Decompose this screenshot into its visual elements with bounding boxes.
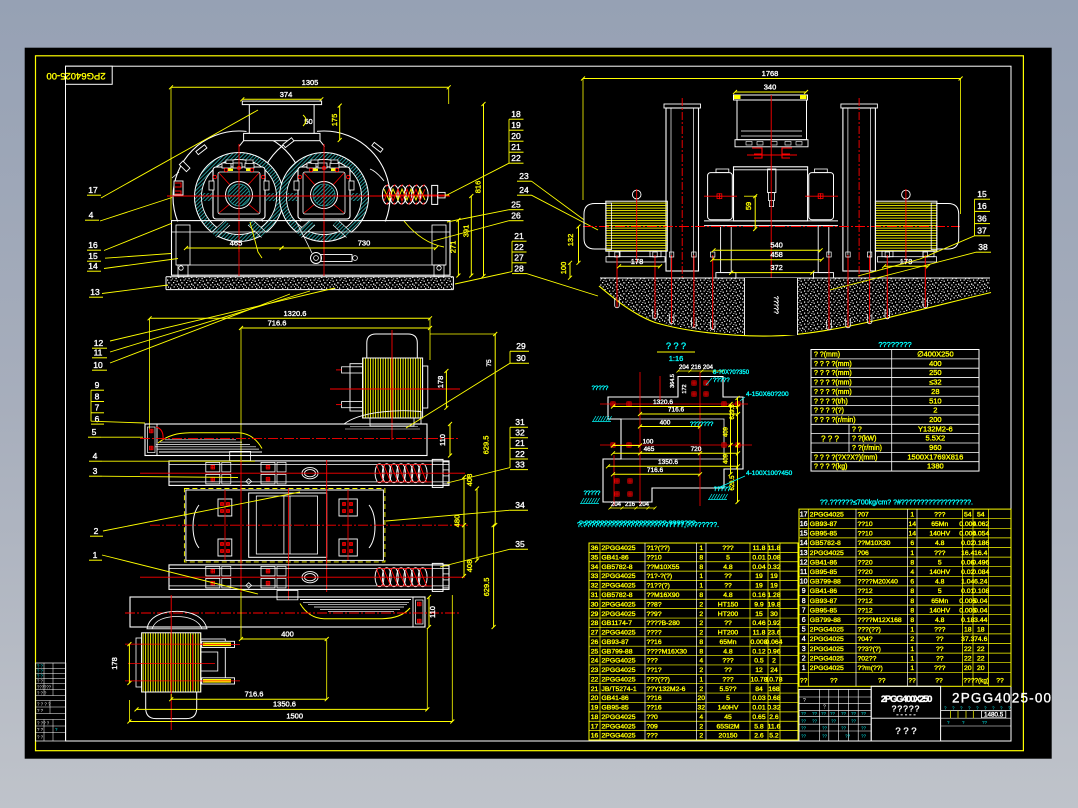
svg-text:GB5782-8: GB5782-8 [602,564,633,571]
svg-text:22: 22 [977,655,985,662]
svg-text:2PGG4025: 2PGG4025 [602,573,636,580]
svg-text:4.8: 4.8 [723,564,733,571]
svg-text:5.8: 5.8 [754,723,764,730]
svg-text:5: 5 [726,554,730,561]
svg-text:???: ??? [722,676,734,683]
svg-text:11: 11 [94,348,103,358]
svg-text:? ?(r/min): ? ?(r/min) [852,445,882,452]
svg-text:??10: ??10 [858,521,873,528]
svg-text:??: ?? [724,620,732,627]
svg-text:??: ?? [812,719,818,724]
svg-text:4.8: 4.8 [723,648,733,655]
svg-text:45: 45 [724,714,732,721]
svg-text:510: 510 [929,396,942,405]
svg-text:8: 8 [910,617,914,624]
svg-text:2: 2 [699,733,703,740]
svg-text:16: 16 [977,201,987,211]
svg-text:0.04: 0.04 [752,564,765,571]
svg-text:?????: ????? [714,487,731,493]
svg-text:716.6: 716.6 [268,319,287,328]
svg-text:1: 1 [910,665,914,672]
svg-text:2PGG4025-00: 2PGG4025-00 [952,691,1052,706]
svg-text:???: ??? [647,658,659,665]
svg-text:??: ?? [841,711,847,716]
svg-text:14: 14 [908,521,916,528]
svg-text:???: ??? [934,627,946,634]
svg-text:35: 35 [591,554,599,561]
svg-text:175: 175 [330,114,339,127]
svg-text:716.6: 716.6 [245,689,264,698]
svg-text:2PG64025-00: 2PG64025-00 [46,70,105,81]
svg-text:?04?: ?04? [858,636,873,643]
svg-text:??Y132M2-6: ??Y132M2-6 [647,686,686,693]
svg-text:GB799-88: GB799-88 [810,579,841,586]
svg-text:204: 204 [679,365,690,371]
svg-text:???(??): ???(??) [858,627,881,634]
svg-text:??M10X30: ??M10X30 [858,540,891,547]
svg-text:GB95-85: GB95-85 [810,607,837,614]
svg-text:22: 22 [964,646,972,653]
svg-text:GB41-86: GB41-86 [810,559,837,566]
svg-text:15: 15 [800,531,808,538]
svg-text:1768: 1768 [762,69,779,78]
svg-text:? ?: ? ? [37,678,43,683]
svg-text:2PGG4025: 2PGG4025 [810,665,844,672]
svg-text:0.65: 0.65 [752,714,765,721]
svg-text:GB5782-8: GB5782-8 [602,592,633,599]
svg-text:8: 8 [910,588,914,595]
svg-text:271: 271 [448,241,457,254]
svg-text:1380: 1380 [927,462,944,471]
svg-text:35: 35 [515,539,525,549]
svg-text:??: ?? [801,711,807,716]
svg-text:0.496: 0.496 [972,559,989,566]
svg-text:629.5: 629.5 [482,436,491,455]
svg-text:????M12X168: ????M12X168 [858,617,902,624]
svg-text:716.6: 716.6 [668,407,685,414]
svg-text:25: 25 [591,648,599,655]
svg-text:??: ?? [861,711,867,716]
svg-text:? ? ? ?(?): ? ? ? ?(?) [814,408,844,415]
svg-text:2: 2 [94,526,99,536]
svg-text:2PGG4025: 2PGG4025 [810,511,844,518]
svg-text:54: 54 [964,511,972,518]
svg-text:140HV: 140HV [929,607,950,614]
svg-text:≤32: ≤32 [929,378,941,387]
svg-text:17: 17 [800,511,808,518]
svg-text:GB95-85: GB95-85 [810,531,837,538]
svg-text:716.6: 716.6 [647,467,664,474]
svg-text:??: ?? [963,677,971,684]
svg-text:33: 33 [515,459,525,469]
svg-text:84: 84 [755,686,763,693]
svg-text:0.68: 0.68 [767,695,780,702]
svg-text:10: 10 [93,360,103,370]
svg-text:5.5X2: 5.5X2 [926,434,946,443]
svg-text:??20: ??20 [858,569,873,576]
svg-text:204: 204 [639,502,650,508]
svg-text:??: ?? [822,734,828,739]
svg-text:? ?: ? ? [37,708,44,713]
svg-text:178: 178 [110,657,119,670]
svg-text:38: 38 [978,242,988,252]
svg-text:34: 34 [591,564,599,571]
svg-text:19: 19 [755,573,763,580]
svg-text:17: 17 [591,723,599,730]
svg-text:12: 12 [755,667,763,674]
svg-text:31: 31 [515,417,525,427]
svg-text:1: 1 [910,627,914,634]
svg-text:0.96: 0.96 [767,648,780,655]
svg-text:??20: ??20 [858,559,873,566]
svg-text:4: 4 [699,714,703,721]
svg-text:24: 24 [519,185,529,195]
svg-text:??: ?? [861,734,867,739]
svg-text:32: 32 [591,583,599,590]
svg-text:17: 17 [88,185,98,195]
svg-text:465: 465 [644,446,655,453]
svg-text:23: 23 [519,171,529,181]
svg-text:480: 480 [453,515,462,528]
svg-text:???: ??? [722,545,734,552]
svg-text:2: 2 [699,611,703,618]
svg-text:720: 720 [691,446,702,453]
svg-text:364.5: 364.5 [670,374,676,388]
svg-text:??: ?? [724,583,732,590]
svg-text:30: 30 [591,601,599,608]
svg-text:??3?(?): ??3?(?) [858,646,881,653]
svg-text:?07: ?07 [858,511,870,518]
svg-text:100: 100 [559,262,568,275]
svg-text:???: ??? [647,733,659,740]
svg-text:30: 30 [516,353,526,363]
svg-text:27: 27 [591,630,599,637]
svg-text:400: 400 [281,629,294,638]
svg-text:20: 20 [698,695,706,702]
svg-text:? ?: ? ? [37,727,44,732]
svg-text:2PGG4025: 2PGG4025 [602,733,636,740]
svg-text:??: ?? [801,734,807,739]
svg-text:2PGG4025: 2PGG4025 [602,545,636,552]
svg-text:9: 9 [95,380,100,390]
svg-text:250: 250 [929,368,942,377]
svg-text:28: 28 [591,620,599,627]
svg-text:4-100X100?450: 4-100X100?450 [746,470,793,477]
svg-text:?????: ????? [772,296,779,314]
svg-text:21: 21 [515,438,525,448]
svg-text:34: 34 [515,500,525,510]
svg-text:?: ? [823,705,826,711]
svg-text:5: 5 [938,588,942,595]
svg-text:1: 1 [910,655,914,662]
svg-text:? ?(kW): ? ?(kW) [852,436,877,443]
svg-text:2PGG4025: 2PGG4025 [810,655,844,662]
svg-text:7: 7 [802,607,806,614]
svg-text:? ? ?: ? ? ? [37,690,47,695]
svg-text:11.8: 11.8 [753,545,766,552]
svg-text:? ? ? ?(mm): ? ? ? ?(mm) [814,389,852,396]
svg-text:1:16: 1:16 [669,354,684,363]
svg-text:HT150: HT150 [718,601,739,608]
svg-text:2PGG4025: 2PGG4025 [602,676,636,683]
svg-text:?????: ????? [592,386,609,392]
svg-text:2: 2 [772,658,776,665]
svg-text:6: 6 [802,617,806,624]
svg-text:? ? ? ?: ? ? ? ? [37,702,51,707]
svg-text:18: 18 [511,109,521,119]
svg-text:??16: ??16 [647,705,662,712]
svg-text:? ? ?: ? ? ? [821,434,839,443]
svg-text:32: 32 [515,428,525,438]
svg-text:?1??(?): ?1??(?) [647,583,670,590]
svg-text:5: 5 [802,627,806,634]
svg-text:21: 21 [514,231,524,241]
svg-text:2: 2 [699,667,703,674]
svg-text:?:?????????????????????,??????: ?:?????????????????????,???????. [579,521,698,528]
svg-text:Y132M2-6: Y132M2-6 [918,424,953,433]
svg-text:?1?-?(?): ?1?-?(?) [647,573,673,580]
svg-text:???: ??? [934,665,946,672]
svg-text:? ? ? ?(mm): ? ? ? ?(mm) [814,361,852,368]
svg-text:??(kg): ??(kg) [971,677,989,684]
svg-text:1: 1 [802,665,806,672]
svg-text:0.03: 0.03 [752,695,765,702]
svg-text:4.8: 4.8 [723,592,733,599]
svg-text:16: 16 [591,733,599,740]
svg-text:65Mn: 65Mn [931,598,948,605]
svg-text:6.24: 6.24 [974,579,987,586]
svg-text:1320.6: 1320.6 [284,309,307,318]
svg-text:GB93-87: GB93-87 [810,521,837,528]
svg-text:8: 8 [910,559,914,566]
svg-text:HT200: HT200 [718,611,739,618]
svg-text:0.064: 0.064 [765,639,782,646]
svg-text:??: ?? [800,677,808,684]
svg-text:1: 1 [910,511,914,518]
svg-text:629.5: 629.5 [482,578,491,597]
svg-text:730: 730 [358,238,371,247]
svg-text:??: ?? [841,726,847,731]
svg-text:??1?: ??1? [647,667,662,674]
svg-text:1: 1 [699,545,703,552]
svg-text:29: 29 [516,341,526,351]
svg-text:2: 2 [699,601,703,608]
svg-text:2PGG4025: 2PGG4025 [810,550,844,557]
svg-text:2: 2 [699,723,703,730]
svg-text:26: 26 [511,211,521,221]
svg-text:2PGG4025: 2PGG4025 [602,601,636,608]
svg-text:6: 6 [910,540,914,547]
svg-text:33: 33 [591,573,599,580]
svg-text:??: ?? [830,711,836,716]
svg-text:36: 36 [591,545,599,552]
svg-text:??: ?? [724,573,732,580]
svg-text:629.5: 629.5 [730,475,736,491]
svg-text:20: 20 [511,131,521,141]
svg-text:??.??????≤700kg/cm? ?#???????: ??.??????≤700kg/cm? ?#??????????????????… [820,500,973,507]
svg-text:??: ?? [851,719,857,724]
svg-text:0.16: 0.16 [752,592,765,599]
svg-text:7: 7 [95,403,100,413]
svg-text:8: 8 [910,598,914,605]
svg-text:14: 14 [88,261,98,271]
svg-text:14: 14 [908,531,916,538]
svg-text:74.6: 74.6 [974,636,987,643]
svg-text:37: 37 [977,226,987,236]
svg-text:??: ?? [851,711,857,716]
svg-text:409: 409 [724,426,730,437]
svg-text:9.9: 9.9 [754,601,764,608]
svg-text:9: 9 [802,588,806,595]
svg-text:5.2: 5.2 [769,733,779,740]
svg-text:20: 20 [964,665,972,672]
svg-text:132: 132 [566,234,575,247]
svg-text:4: 4 [802,636,806,643]
svg-text:JB/T5274-1: JB/T5274-1 [602,686,637,693]
svg-text:5.5??: 5.5?? [719,686,736,693]
svg-text:4.8: 4.8 [935,579,945,586]
svg-text:1.04: 1.04 [961,579,974,586]
svg-text:37.3: 37.3 [961,636,974,643]
svg-text:0.04: 0.04 [974,607,987,614]
svg-text:3: 3 [802,646,806,653]
svg-text:2.6: 2.6 [754,733,764,740]
svg-text:21: 21 [511,142,521,152]
svg-text:? ?(mm): ? ?(mm) [814,352,840,359]
svg-text:216: 216 [691,365,702,371]
svg-text:? ? ?: ? ? ? [895,726,916,737]
svg-text:24: 24 [591,658,599,665]
svg-text:27: 27 [514,253,524,263]
svg-text:????M16X30: ????M16X30 [647,648,688,655]
svg-text:??: ?? [830,677,838,684]
svg-text:0.054: 0.054 [972,531,989,538]
svg-text:172: 172 [682,384,688,393]
svg-text:16.4: 16.4 [961,550,974,557]
svg-text:??????: ?????? [37,684,52,689]
svg-text:8: 8 [95,391,100,401]
svg-text:21: 21 [591,686,599,693]
svg-text:1: 1 [93,550,98,560]
svg-text:2PGG4025: 2PGG4025 [810,627,844,634]
svg-text:10.78: 10.78 [765,676,782,683]
svg-text:8: 8 [699,564,703,571]
svg-text:????M20X40: ????M20X40 [858,579,899,586]
svg-text:29: 29 [591,611,599,618]
svg-text:??: ?? [821,711,827,716]
svg-text:4: 4 [699,658,703,665]
svg-text:2PGG4025: 2PGG4025 [810,636,844,643]
svg-text:??8?: ??8? [647,601,662,608]
svg-text:??: ?? [845,734,851,739]
svg-text:2.6: 2.6 [769,714,779,721]
svg-text:? ? ?: ? ? ? [666,341,686,351]
svg-text:?????: ????? [584,491,601,497]
svg-text:22: 22 [515,449,525,459]
svg-text:178: 178 [631,257,644,266]
svg-text:110: 110 [428,606,437,618]
svg-text:?????: ????? [713,378,730,384]
svg-text:??10: ??10 [858,531,873,538]
svg-text:20: 20 [977,665,985,672]
svg-text:22: 22 [964,655,972,662]
svg-text:19: 19 [770,573,778,580]
svg-text:??m(??): ??m(??) [858,665,883,672]
svg-text:1305: 1305 [302,78,319,87]
svg-text:110: 110 [438,434,447,446]
svg-text:408: 408 [465,560,474,573]
svg-text:409: 409 [724,453,730,464]
svg-text:8: 8 [699,592,703,599]
svg-text:2PGG4025: 2PGG4025 [602,630,636,637]
svg-text:8: 8 [699,648,703,655]
svg-text:??16: ??16 [647,639,662,646]
svg-text:0.108: 0.108 [972,588,989,595]
svg-text:? ?? ?: ? ?? ? [37,721,50,726]
svg-text:8: 8 [699,639,703,646]
svg-text:65Mn: 65Mn [931,521,948,528]
svg-text:458: 458 [770,250,783,259]
svg-text:??: ?? [822,726,828,731]
svg-text:GB93-87: GB93-87 [810,598,837,605]
svg-text:20150: 20150 [719,733,738,740]
svg-text:465: 465 [230,238,243,247]
svg-text:2PGG4025: 2PGG4025 [602,658,636,665]
svg-text:216: 216 [625,502,636,508]
svg-text:?: ? [803,698,806,704]
svg-text:5: 5 [92,427,97,437]
svg-text:??: ?? [812,711,818,716]
svg-text:140HV: 140HV [929,531,950,538]
svg-text:???: ??? [934,511,946,518]
svg-text:? ?: ? ? [852,426,862,433]
svg-text:25: 25 [511,200,521,210]
svg-text:15: 15 [755,611,763,618]
svg-text:GB1174-7: GB1174-7 [602,620,633,627]
svg-text:372: 372 [770,263,783,272]
svg-text:??9?: ??9? [647,611,662,618]
svg-text:??: ?? [861,726,867,731]
svg-text:0.18: 0.18 [961,617,974,624]
svg-text:816: 816 [474,181,483,194]
svg-text:???????: ??????? [690,422,714,428]
svg-text:??: ?? [982,720,988,725]
svg-text:100: 100 [643,439,654,446]
svg-text:8: 8 [910,607,914,614]
svg-text:?1?(??): ?1?(??) [647,545,670,552]
svg-text:???: ??? [722,658,734,665]
svg-text:0.04: 0.04 [974,598,987,605]
svg-text:16.4: 16.4 [974,550,987,557]
svg-text:4.8: 4.8 [935,617,945,624]
svg-text:1320.6: 1320.6 [653,399,673,406]
svg-text:????????: ???????? [878,340,911,349]
svg-text:540: 540 [770,240,783,249]
svg-text:10: 10 [800,579,808,586]
svg-text:2PGG4025: 2PGG4025 [602,611,636,618]
svg-text:??: ?? [936,646,944,653]
svg-text:6: 6 [910,579,914,586]
svg-text:2: 2 [910,636,914,643]
svg-text:??0: ??0 [647,714,659,721]
svg-text:?09: ?09 [647,723,659,730]
svg-text:20: 20 [591,695,599,702]
svg-text:65Si2M: 65Si2M [716,723,739,730]
svg-text:??12: ??12 [858,588,873,595]
svg-text:65Mn: 65Mn [719,639,736,646]
svg-text:1480.5: 1480.5 [984,712,1004,719]
svg-text:??M10X55: ??M10X55 [647,564,680,571]
